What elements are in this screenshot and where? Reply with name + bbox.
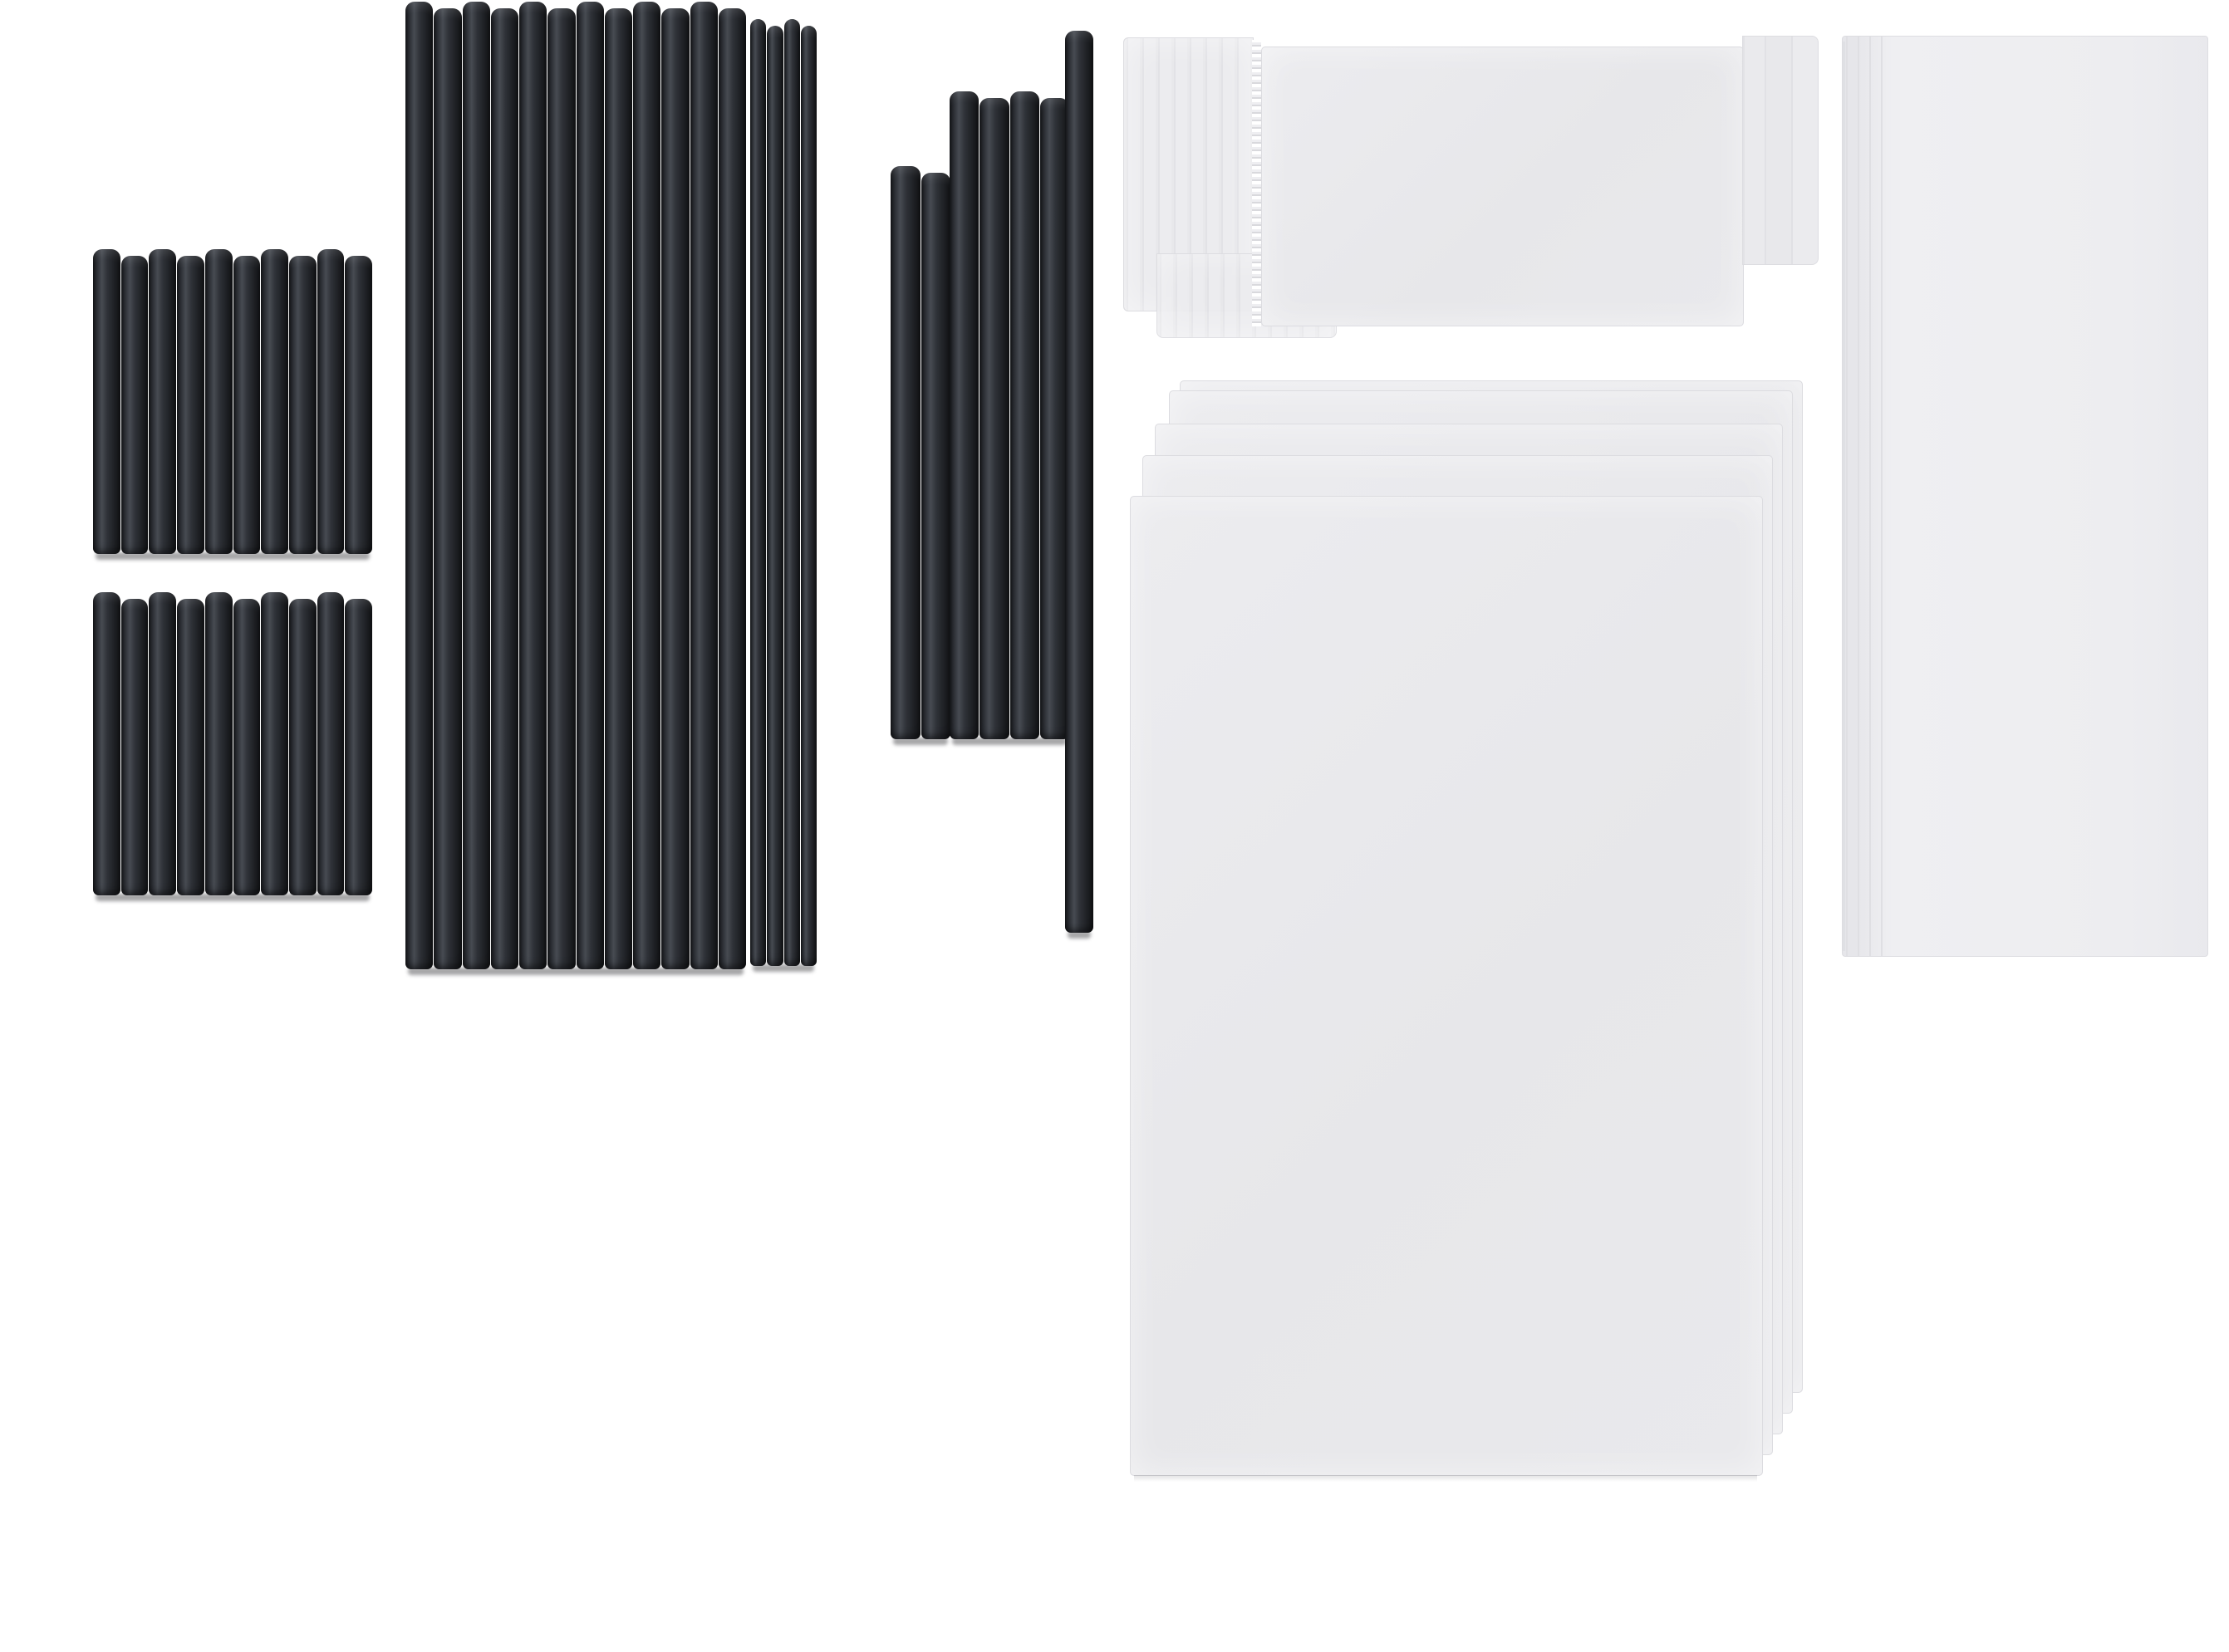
- large-ribbed-panel-rod: [463, 2, 490, 969]
- large-ribbed-panel-rod: [605, 8, 632, 969]
- large-ribbed-panel-rod: [690, 2, 718, 969]
- large-ribbed-panel-rod: [661, 8, 689, 969]
- large-ribbed-panel-rod: [547, 8, 575, 969]
- long-single-rod-rod: [1065, 31, 1093, 933]
- small-ribbed-panel-top-rod: [93, 249, 120, 554]
- small-ribbed-panel-bottom-rod: [121, 599, 149, 895]
- large-ribbed-panel: [405, 2, 746, 969]
- big-stack-bottom-shadow: [1134, 1475, 1757, 1482]
- small-ribbed-panel-bottom: [93, 592, 372, 895]
- narrow-rod-bundle-rod: [801, 26, 817, 966]
- rod-quad-rod: [1010, 91, 1039, 739]
- rod-quad-rod: [950, 91, 979, 739]
- small-ribbed-panel-bottom-rod: [233, 599, 261, 895]
- large-ribbed-panel-rod: [519, 2, 547, 969]
- top-stack-face: [1261, 47, 1744, 326]
- small-ribbed-panel-top: [93, 249, 372, 554]
- small-ribbed-panel-bottom-rod: [177, 599, 204, 895]
- small-ribbed-panel-bottom-rod: [93, 592, 120, 895]
- large-ribbed-panel-rod: [633, 2, 660, 969]
- rod-pair-rod: [891, 166, 921, 739]
- small-ribbed-panel-top-rod: [177, 256, 204, 554]
- small-ribbed-panel-bottom-rod: [205, 592, 233, 895]
- top-stack-folded-edge: [1742, 36, 1819, 265]
- long-single-rod: [1065, 31, 1093, 933]
- large-ribbed-panel-rod: [434, 8, 461, 969]
- small-ribbed-panel-bottom-rod: [149, 592, 176, 895]
- small-ribbed-panel-top-rod: [121, 256, 149, 554]
- sheet-1: [1130, 496, 1763, 1476]
- small-ribbed-panel-top-rod: [149, 249, 176, 554]
- small-ribbed-panel-top-rod: [261, 249, 288, 554]
- small-ribbed-panel-top-rod: [205, 249, 233, 554]
- narrow-rod-bundle: [750, 19, 817, 966]
- product-photo: [0, 0, 2229, 1652]
- small-ribbed-panel-top-rod: [345, 256, 372, 554]
- small-ribbed-panel-top-rod: [317, 249, 345, 554]
- small-ribbed-panel-bottom-rod: [261, 592, 288, 895]
- rod-pair-rod: [921, 173, 951, 739]
- narrow-rod-bundle-rod: [767, 26, 783, 966]
- narrow-rod-bundle-rod: [750, 19, 766, 966]
- large-ribbed-panel-rod: [491, 8, 518, 969]
- small-ribbed-panel-bottom-rod: [289, 599, 317, 895]
- large-ribbed-panel-rod: [577, 2, 604, 969]
- small-ribbed-panel-top-rod: [289, 256, 317, 554]
- small-ribbed-panel-bottom-rod: [317, 592, 345, 895]
- small-ribbed-panel-top-rod: [233, 256, 261, 554]
- top-stack-serrated-edge: [1252, 40, 1261, 326]
- large-ribbed-panel-rod: [719, 8, 746, 969]
- rod-pair: [891, 166, 950, 739]
- large-ribbed-panel-rod: [405, 2, 433, 969]
- rod-quad: [950, 91, 1069, 739]
- door-panel: [1842, 36, 2208, 957]
- small-ribbed-panel-bottom-rod: [345, 599, 372, 895]
- narrow-rod-bundle-rod: [784, 19, 800, 966]
- rod-quad-rod: [979, 98, 1009, 739]
